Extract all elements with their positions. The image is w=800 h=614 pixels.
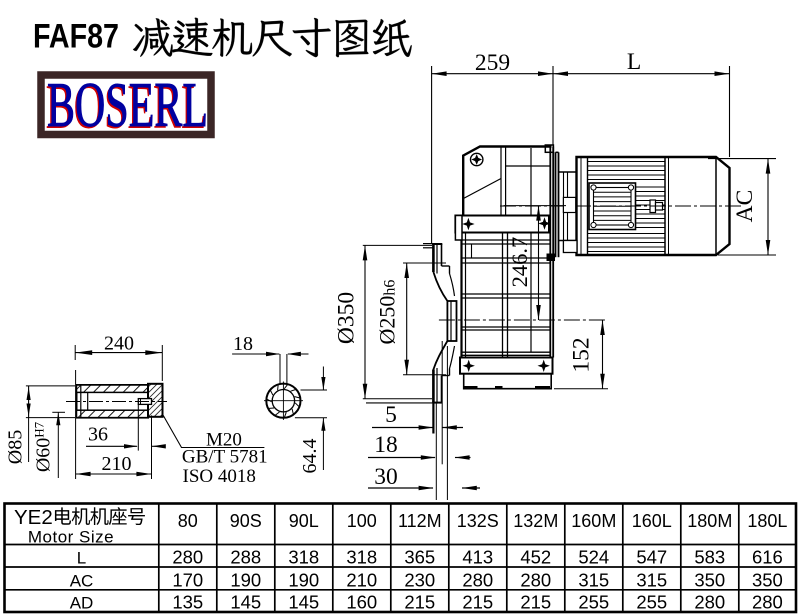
svg-text:280: 280 xyxy=(172,546,203,567)
svg-text:L: L xyxy=(77,548,86,567)
svg-text:547: 547 xyxy=(636,546,667,567)
svg-text:288: 288 xyxy=(230,546,261,567)
svg-text:132M: 132M xyxy=(513,511,558,531)
svg-text:413: 413 xyxy=(462,546,493,567)
svg-text:90S: 90S xyxy=(230,511,262,531)
svg-text:160: 160 xyxy=(346,591,377,612)
svg-text:30: 30 xyxy=(374,464,398,490)
svg-text:280: 280 xyxy=(694,591,725,612)
svg-text:112M: 112M xyxy=(398,511,442,531)
svg-text:135: 135 xyxy=(172,591,203,612)
svg-text:Ø350: Ø350 xyxy=(334,292,360,344)
svg-text:YE2: YE2 xyxy=(14,506,53,529)
svg-text:280: 280 xyxy=(520,569,551,590)
svg-text:L: L xyxy=(627,49,641,75)
svg-text:246.7: 246.7 xyxy=(507,237,532,288)
svg-text:583: 583 xyxy=(694,546,725,567)
svg-text:452: 452 xyxy=(520,546,551,567)
svg-text:80: 80 xyxy=(178,511,198,531)
svg-text:100: 100 xyxy=(347,511,377,531)
svg-text:145: 145 xyxy=(230,591,261,612)
svg-text:GB/T 5781: GB/T 5781 xyxy=(182,447,268,468)
svg-text:230: 230 xyxy=(404,569,435,590)
svg-text:145: 145 xyxy=(288,591,319,612)
svg-text:318: 318 xyxy=(288,546,319,567)
svg-text:315: 315 xyxy=(578,569,609,590)
svg-text:18: 18 xyxy=(374,432,398,458)
svg-text:315: 315 xyxy=(636,569,667,590)
svg-text:255: 255 xyxy=(578,591,609,612)
svg-text:Motor Size: Motor Size xyxy=(28,528,114,547)
svg-text:210: 210 xyxy=(346,569,377,590)
svg-text:64.4: 64.4 xyxy=(299,439,321,474)
svg-text:280: 280 xyxy=(462,569,493,590)
svg-text:215: 215 xyxy=(404,591,435,612)
svg-text:210: 210 xyxy=(102,453,132,475)
svg-text:259: 259 xyxy=(475,50,510,76)
svg-text:180M: 180M xyxy=(687,511,732,531)
svg-text:365: 365 xyxy=(404,546,435,567)
svg-text:280: 280 xyxy=(752,591,783,612)
svg-text:215: 215 xyxy=(462,591,493,612)
svg-text:318: 318 xyxy=(346,546,377,567)
svg-text:18: 18 xyxy=(233,333,253,355)
svg-text:BOSERL: BOSERL xyxy=(47,69,208,140)
svg-text:FAF87: FAF87 xyxy=(33,18,119,56)
svg-text:350: 350 xyxy=(752,569,783,590)
svg-text:350: 350 xyxy=(694,569,725,590)
svg-text:132S: 132S xyxy=(457,511,499,531)
svg-text:160M: 160M xyxy=(571,511,616,531)
svg-text:170: 170 xyxy=(172,569,203,590)
svg-text:215: 215 xyxy=(520,591,551,612)
svg-text:255: 255 xyxy=(636,591,667,612)
svg-text:190: 190 xyxy=(230,569,261,590)
svg-text:524: 524 xyxy=(578,546,609,567)
svg-text:Ø85: Ø85 xyxy=(5,430,27,464)
svg-text:616: 616 xyxy=(752,546,783,567)
svg-text:180L: 180L xyxy=(747,511,787,531)
svg-text:190: 190 xyxy=(288,569,319,590)
svg-text:90L: 90L xyxy=(289,511,319,531)
svg-text:36: 36 xyxy=(88,424,108,446)
svg-text:240: 240 xyxy=(104,333,134,355)
svg-text:AC: AC xyxy=(70,571,94,590)
svg-text:160L: 160L xyxy=(632,511,672,531)
svg-text:5: 5 xyxy=(385,402,397,428)
svg-text:AD: AD xyxy=(70,593,94,612)
svg-text:ISO 4018: ISO 4018 xyxy=(183,466,256,487)
svg-text:152: 152 xyxy=(569,337,595,372)
